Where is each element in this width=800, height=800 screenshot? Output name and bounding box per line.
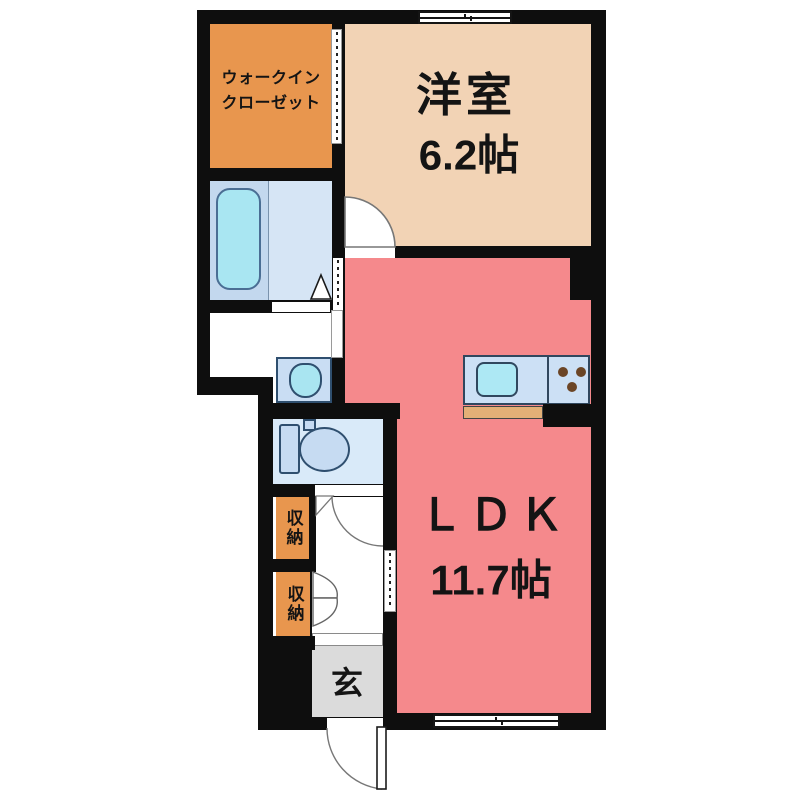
stove-burner-icon (567, 382, 577, 392)
kitchen-counter-edge (463, 406, 543, 419)
wall-right (591, 10, 606, 730)
window-top (418, 11, 512, 24)
ldk-sliding-door (384, 550, 396, 612)
storage-upper-label: 収納 (281, 509, 306, 547)
closet-sliding-door (331, 29, 342, 144)
western-room-name: 洋室 (416, 59, 516, 125)
wall-kitchen-stub (543, 404, 606, 427)
window-bottom (433, 714, 560, 728)
walk-in-closet-label-line1: ウォークイン (221, 66, 320, 91)
walk-in-closet-label: ウォークイン クローゼット (221, 66, 320, 116)
stove-burner-icon (558, 367, 568, 377)
toilet-bowl-icon (299, 427, 350, 472)
western-room-size: 6.2帖 (419, 122, 519, 183)
washroom-sliding-track (333, 258, 343, 311)
bathroom-door-opening (272, 302, 330, 312)
kitchen-counter-divider (547, 356, 549, 404)
genkan-step (312, 633, 383, 646)
entrance-opening (327, 718, 383, 730)
washroom-sliding-panel (331, 310, 343, 358)
wall-left-step (197, 377, 273, 395)
walk-in-closet-label-line2: クローゼット (221, 91, 320, 116)
bathtub-icon (216, 188, 261, 290)
floor-plan: ウォークイン クローゼット 洋室 6.2帖 ＬＤＫ 11.7帖 収納 収納 玄 (0, 0, 800, 800)
stove-burner-icon (576, 367, 586, 377)
wall-storage-bottom (258, 636, 315, 650)
entrance-door-leaf (377, 727, 386, 789)
storage-lower-label: 収納 (282, 585, 307, 623)
ldk-name: ＬＤＫ (419, 479, 569, 543)
ldk-size: 11.7帖 (430, 547, 551, 608)
wall-storage-divider (258, 559, 315, 572)
pillar-top-right (570, 258, 606, 300)
hallway (312, 495, 383, 633)
toilet-door-opening (315, 485, 383, 496)
wall-washroom-toilet (258, 403, 400, 419)
wall-top (197, 10, 606, 24)
entrance-door-arc (327, 728, 382, 789)
kitchen-sink-icon (476, 362, 518, 397)
entrance-label: 玄 (331, 658, 363, 704)
toilet-tank-icon (279, 424, 300, 474)
wall-closet-bottom (197, 168, 345, 181)
western-door-opening (345, 247, 395, 258)
washbasin-bowl-icon (289, 363, 322, 398)
wall-left-upper (197, 10, 210, 395)
